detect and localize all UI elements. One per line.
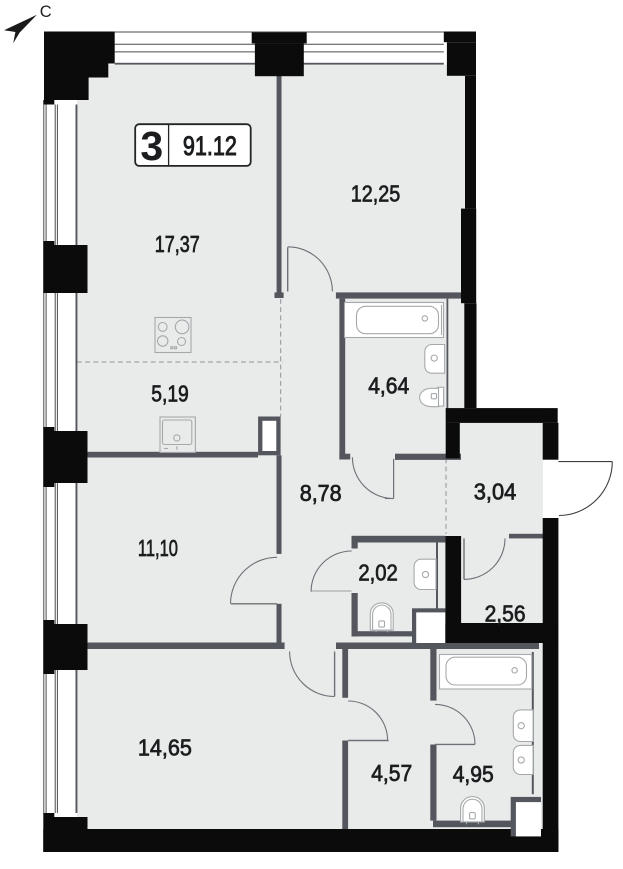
svg-text:2,02: 2,02 [358, 559, 398, 585]
svg-text:14,65: 14,65 [138, 734, 192, 760]
svg-text:5,19: 5,19 [151, 381, 189, 407]
svg-text:17,37: 17,37 [155, 231, 200, 257]
svg-text:С: С [40, 3, 52, 21]
svg-text:4,57: 4,57 [371, 760, 412, 786]
svg-text:2,56: 2,56 [485, 600, 526, 626]
svg-text:3: 3 [140, 123, 163, 169]
svg-text:91.12: 91.12 [183, 131, 237, 161]
svg-text:11,10: 11,10 [138, 535, 178, 561]
svg-text:3,04: 3,04 [474, 479, 517, 505]
svg-text:4,64: 4,64 [368, 373, 409, 399]
svg-text:8,78: 8,78 [300, 480, 342, 506]
svg-text:12,25: 12,25 [351, 181, 401, 207]
svg-text:4,95: 4,95 [453, 761, 494, 787]
